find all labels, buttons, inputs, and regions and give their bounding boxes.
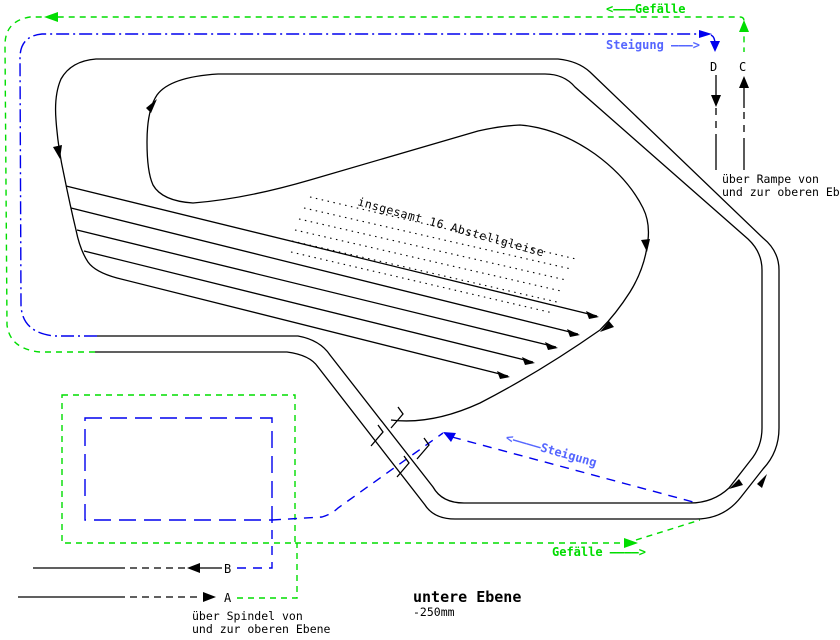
point-d-arrow-icon bbox=[711, 95, 721, 107]
gefaelle-spindle-frame bbox=[62, 395, 295, 543]
collector-top-arrow-icon bbox=[641, 239, 650, 252]
bridge-tick-3 bbox=[397, 456, 409, 477]
track-plan-canvas: <———Gefälle Steigung ———> D C über Rampe… bbox=[0, 0, 840, 640]
inner-loop-track bbox=[97, 74, 762, 503]
point-b-arrow-icon bbox=[187, 563, 200, 573]
steigung-top-label: Steigung ———> bbox=[606, 38, 700, 52]
point-d-label: D bbox=[710, 60, 717, 74]
siding2-arrow-icon bbox=[567, 329, 580, 337]
gefaelle-top-label: <———Gefälle bbox=[606, 2, 685, 16]
yard-note-label: insgesamt 16 Abstellgleise bbox=[356, 194, 546, 259]
point-b-label: B bbox=[224, 562, 231, 576]
level-title: untere Ebene bbox=[413, 588, 521, 606]
gradient-down-path-group bbox=[5, 17, 744, 598]
track-direction-arrows bbox=[53, 76, 767, 602]
steigung-hidden-frame bbox=[85, 418, 272, 520]
gefaelle-arrow-up-icon bbox=[739, 20, 749, 32]
steigung-arrow-right-icon bbox=[699, 30, 712, 38]
steigung-point-b-connector bbox=[237, 520, 272, 568]
point-a-arrow-icon bbox=[203, 592, 216, 602]
balloon-arrow-icon bbox=[146, 99, 157, 113]
siding5-arrow-icon bbox=[497, 371, 510, 379]
point-a-label: A bbox=[224, 591, 232, 605]
level-elevation: -250mm bbox=[413, 605, 455, 619]
dotted-siding-6 bbox=[291, 252, 553, 313]
inner-corner-arrow-icon bbox=[729, 479, 743, 489]
siding3-arrow-icon bbox=[545, 342, 558, 350]
steigung-main-line bbox=[20, 34, 704, 336]
gefaelle-arrow-left-icon bbox=[44, 12, 58, 22]
bridge-tick-4 bbox=[417, 438, 429, 459]
siding-track-2 bbox=[71, 208, 578, 334]
ramp-note-line2: und zur oberen Ebene bbox=[722, 185, 840, 199]
ramp-note-line1: über Rampe von bbox=[722, 172, 819, 186]
track-plan-lower-level: <———Gefälle Steigung ———> D C über Rampe… bbox=[0, 0, 840, 640]
point-c-arrow-icon bbox=[739, 76, 749, 88]
outer-loop-track bbox=[56, 59, 779, 519]
bridge-tick-2 bbox=[391, 407, 403, 428]
spindle-note-line2: und zur oberen Ebene bbox=[192, 622, 331, 636]
siding4-arrow-icon bbox=[522, 357, 535, 365]
track-group bbox=[18, 59, 779, 597]
siding1-arrow-icon bbox=[586, 311, 599, 319]
point-c-label: C bbox=[739, 60, 746, 74]
bridge-tick-marks bbox=[371, 407, 429, 477]
steigung-ramp-line bbox=[272, 433, 697, 520]
gefaelle-bottom-line bbox=[295, 520, 700, 543]
gefaelle-point-a-connector bbox=[237, 543, 297, 598]
gefaelle-main-line bbox=[5, 17, 744, 352]
gefaelle-bottom-label: Gefälle ————> bbox=[552, 545, 646, 559]
outer-corner-arrow-icon bbox=[757, 474, 767, 488]
spindle-note-line1: über Spindel von bbox=[192, 609, 303, 623]
steigung-arrow-down-icon bbox=[710, 41, 720, 52]
